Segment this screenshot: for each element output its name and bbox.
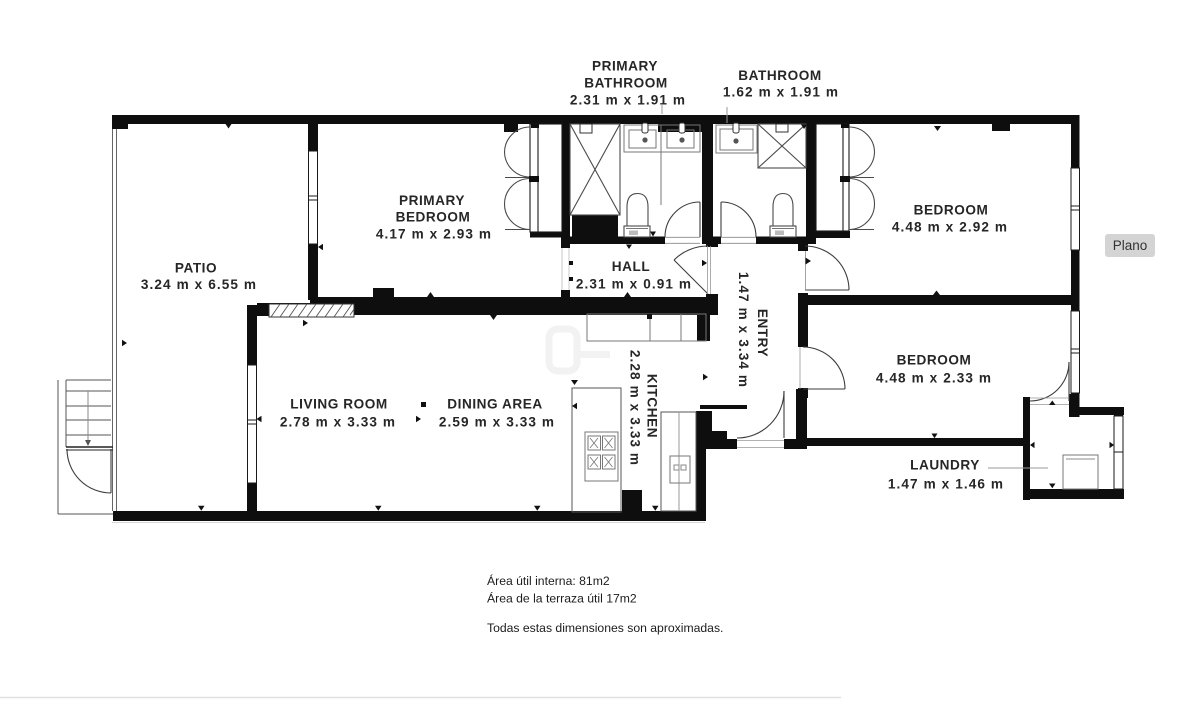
svg-text:BATHROOM: BATHROOM [738, 68, 821, 83]
svg-text:Área útil interna: 81m2: Área útil interna: 81m2 [487, 573, 610, 588]
svg-text:PRIMARY: PRIMARY [399, 193, 465, 208]
svg-text:4.17 m x 2.93 m: 4.17 m x 2.93 m [376, 227, 492, 242]
svg-text:LAUNDRY: LAUNDRY [910, 458, 980, 473]
svg-text:Plano: Plano [1113, 238, 1148, 253]
svg-text:2.31 m x 0.91 m: 2.31 m x 0.91 m [576, 277, 692, 292]
svg-text:LIVING ROOM: LIVING ROOM [290, 397, 387, 412]
svg-text:2.78 m x 3.33 m: 2.78 m x 3.33 m [280, 415, 396, 430]
svg-text:4.48 m x 2.92 m: 4.48 m x 2.92 m [892, 220, 1008, 235]
svg-text:PRIMARY: PRIMARY [592, 59, 658, 74]
svg-text:2.28 m x 3.33 m: 2.28 m x 3.33 m [628, 350, 643, 466]
svg-text:1.47 m x 1.46 m: 1.47 m x 1.46 m [888, 477, 1004, 492]
svg-text:3.24 m x 6.55 m: 3.24 m x 6.55 m [141, 277, 257, 292]
svg-text:2.31 m x 1.91 m: 2.31 m x 1.91 m [570, 93, 686, 108]
svg-text:HALL: HALL [612, 259, 650, 274]
svg-text:BEDROOM: BEDROOM [396, 210, 471, 225]
svg-text:1.47 m x 3.34 m: 1.47 m x 3.34 m [736, 272, 751, 388]
svg-text:Área de la terraza útil 17m2: Área de la terraza útil 17m2 [487, 591, 637, 606]
svg-text:1.62 m x 1.91 m: 1.62 m x 1.91 m [723, 85, 839, 100]
svg-text:BEDROOM: BEDROOM [914, 203, 989, 218]
svg-text:KITCHEN: KITCHEN [645, 374, 660, 438]
svg-text:Todas estas dimensiones son ap: Todas estas dimensiones son aproximadas. [487, 621, 723, 635]
svg-text:ENTRY: ENTRY [755, 309, 770, 357]
svg-text:2.59 m x 3.33 m: 2.59 m x 3.33 m [439, 415, 555, 430]
svg-text:BATHROOM: BATHROOM [584, 76, 667, 91]
svg-text:DINING AREA: DINING AREA [447, 397, 542, 412]
svg-text:PATIO: PATIO [175, 261, 217, 276]
svg-text:BEDROOM: BEDROOM [897, 353, 972, 368]
svg-text:4.48 m x 2.33 m: 4.48 m x 2.33 m [876, 371, 992, 386]
